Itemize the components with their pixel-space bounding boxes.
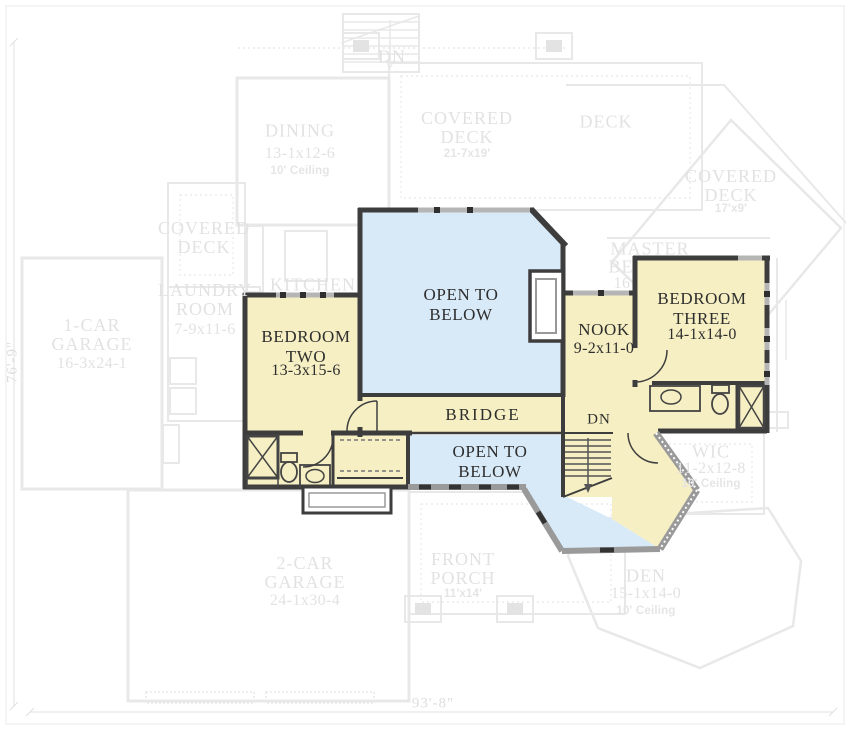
upper-floor-layer xyxy=(243,207,770,551)
chimney xyxy=(530,271,563,341)
bedroom-three-floor xyxy=(635,258,767,433)
floor-plan: OPEN TO BELOW BEDROOM TWO 13-3x15-6 NOOK… xyxy=(0,0,850,731)
bridge-floor xyxy=(360,397,563,433)
floor-plan-canvas xyxy=(0,0,850,731)
bay-window xyxy=(303,487,391,513)
bathroom-left-floor xyxy=(245,433,410,489)
ghost-kitchen-island xyxy=(285,231,327,281)
ghost-deck xyxy=(566,85,846,223)
nook-floor xyxy=(563,295,635,433)
ghost-dining-room xyxy=(237,78,389,225)
ghost-two-car-garage xyxy=(128,490,409,701)
bedroom-two-floor xyxy=(245,295,360,433)
ghost-one-car-garage xyxy=(22,258,162,489)
